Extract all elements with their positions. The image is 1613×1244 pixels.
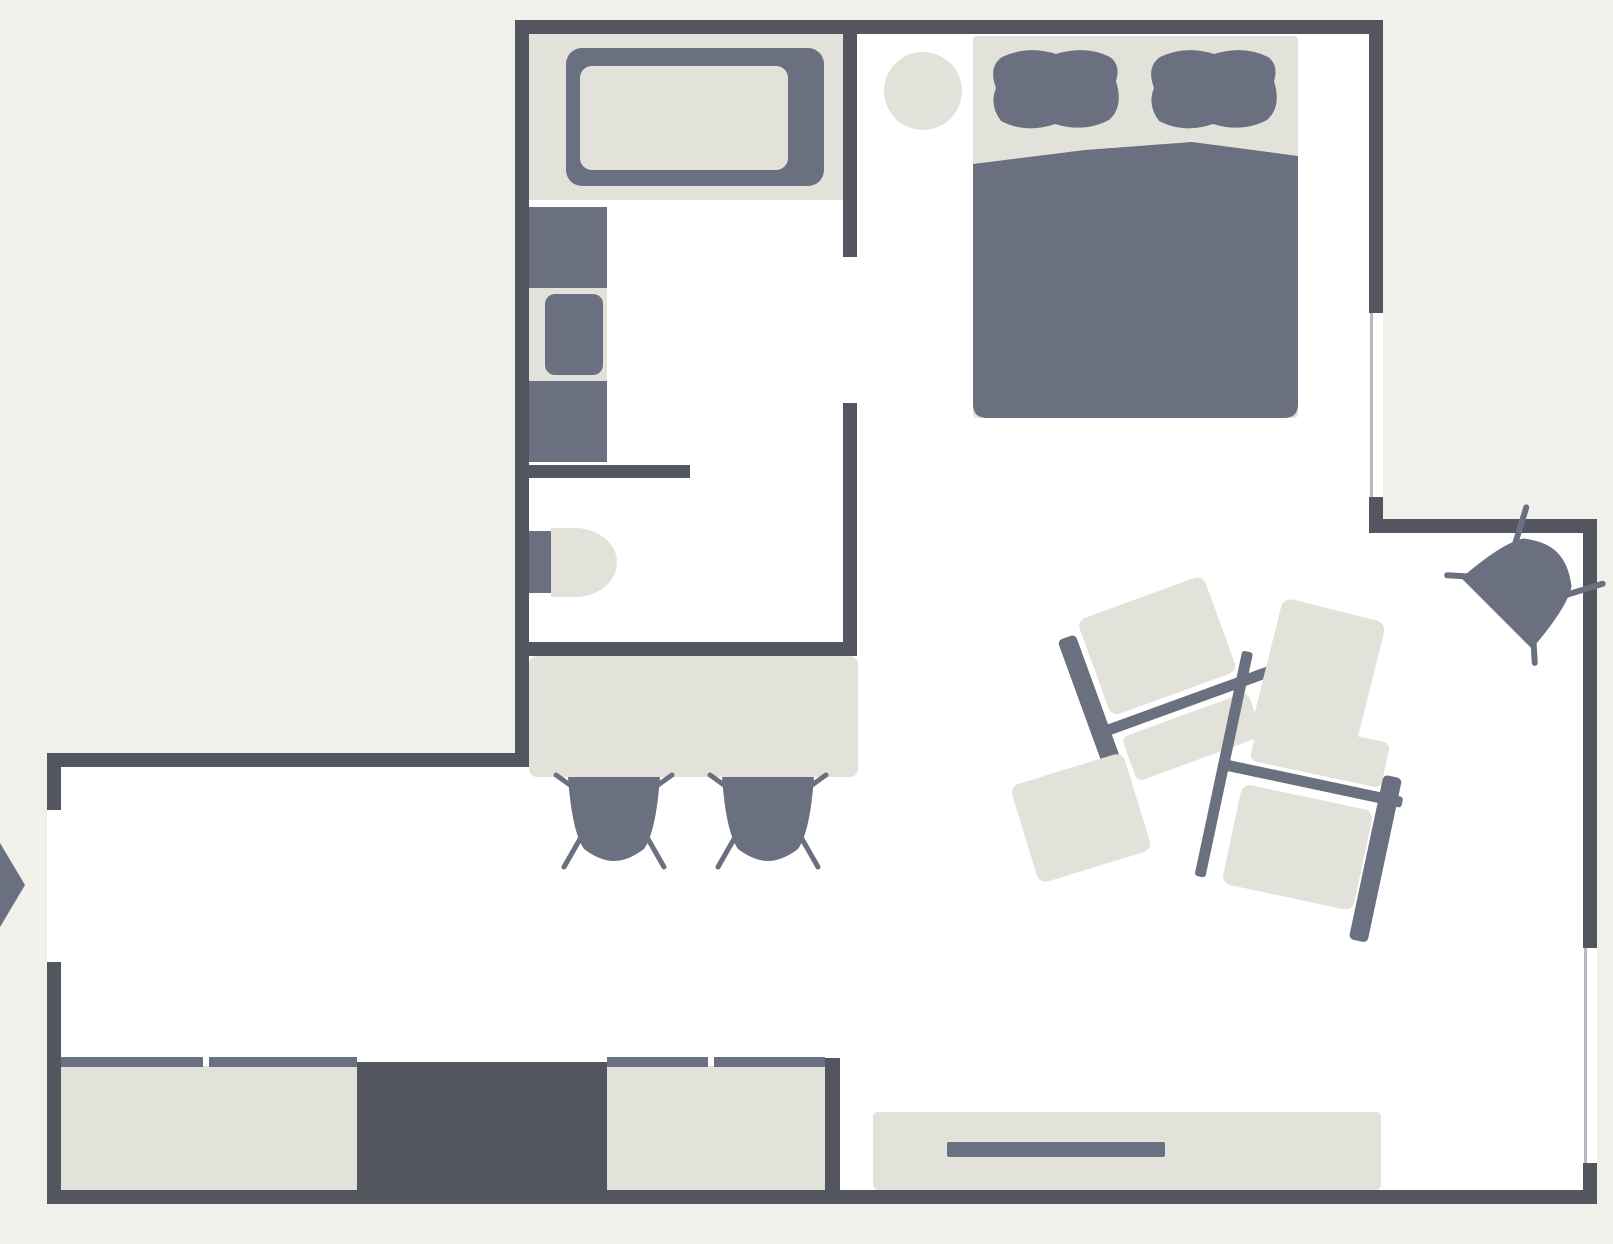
wardrobe-right — [607, 1066, 825, 1190]
closet-unit — [357, 1062, 607, 1190]
wardrobe-left-door-track-2 — [209, 1057, 357, 1067]
pillow-shape — [1151, 50, 1277, 128]
entrance-door-gap — [47, 810, 61, 962]
pillow-shape — [993, 50, 1119, 128]
living-window-frame — [1584, 948, 1587, 1163]
wall-bedroom-east-upper — [1369, 20, 1383, 313]
vanity-cabinet-upper — [529, 207, 607, 288]
wall-bathroom-east-upper — [843, 34, 857, 257]
wardrobe-left — [61, 1066, 357, 1190]
wall-west-above-door — [47, 753, 61, 810]
wall-bedroom-east-lower — [1369, 497, 1383, 533]
wall-bathroom-east-lower — [843, 403, 857, 656]
bathtub-basin — [580, 66, 788, 170]
wall-east-below-window — [1583, 1163, 1597, 1204]
wall-notch-horizontal — [1369, 519, 1597, 533]
bed-pillow-1 — [993, 50, 1119, 128]
wall-hallway-top — [47, 753, 529, 767]
toilet-tank — [529, 531, 552, 593]
wall-west-below-door — [47, 962, 61, 1204]
vanity-cabinet-lower — [529, 381, 607, 462]
bed-pillow-2 — [1151, 50, 1277, 128]
wall-south — [47, 1190, 1597, 1204]
wall-bathroom-stub — [529, 465, 690, 478]
wardrobe-left-door-track-1 — [61, 1057, 203, 1067]
wall-closet-stub — [825, 1058, 840, 1190]
bed-duvet — [973, 142, 1298, 418]
bedside-stool — [884, 52, 962, 130]
bedroom-window-frame — [1370, 313, 1373, 497]
wall-north — [515, 20, 1383, 34]
floor-plan-canvas — [0, 0, 1613, 1244]
wardrobe-right-door-track-2 — [714, 1057, 825, 1067]
wall-bathroom-south — [515, 642, 857, 656]
washbasin — [545, 294, 603, 375]
dining-table — [529, 656, 858, 777]
tv — [947, 1142, 1165, 1157]
wardrobe-right-door-track-1 — [607, 1057, 708, 1067]
floor-plan — [0, 0, 1613, 1244]
